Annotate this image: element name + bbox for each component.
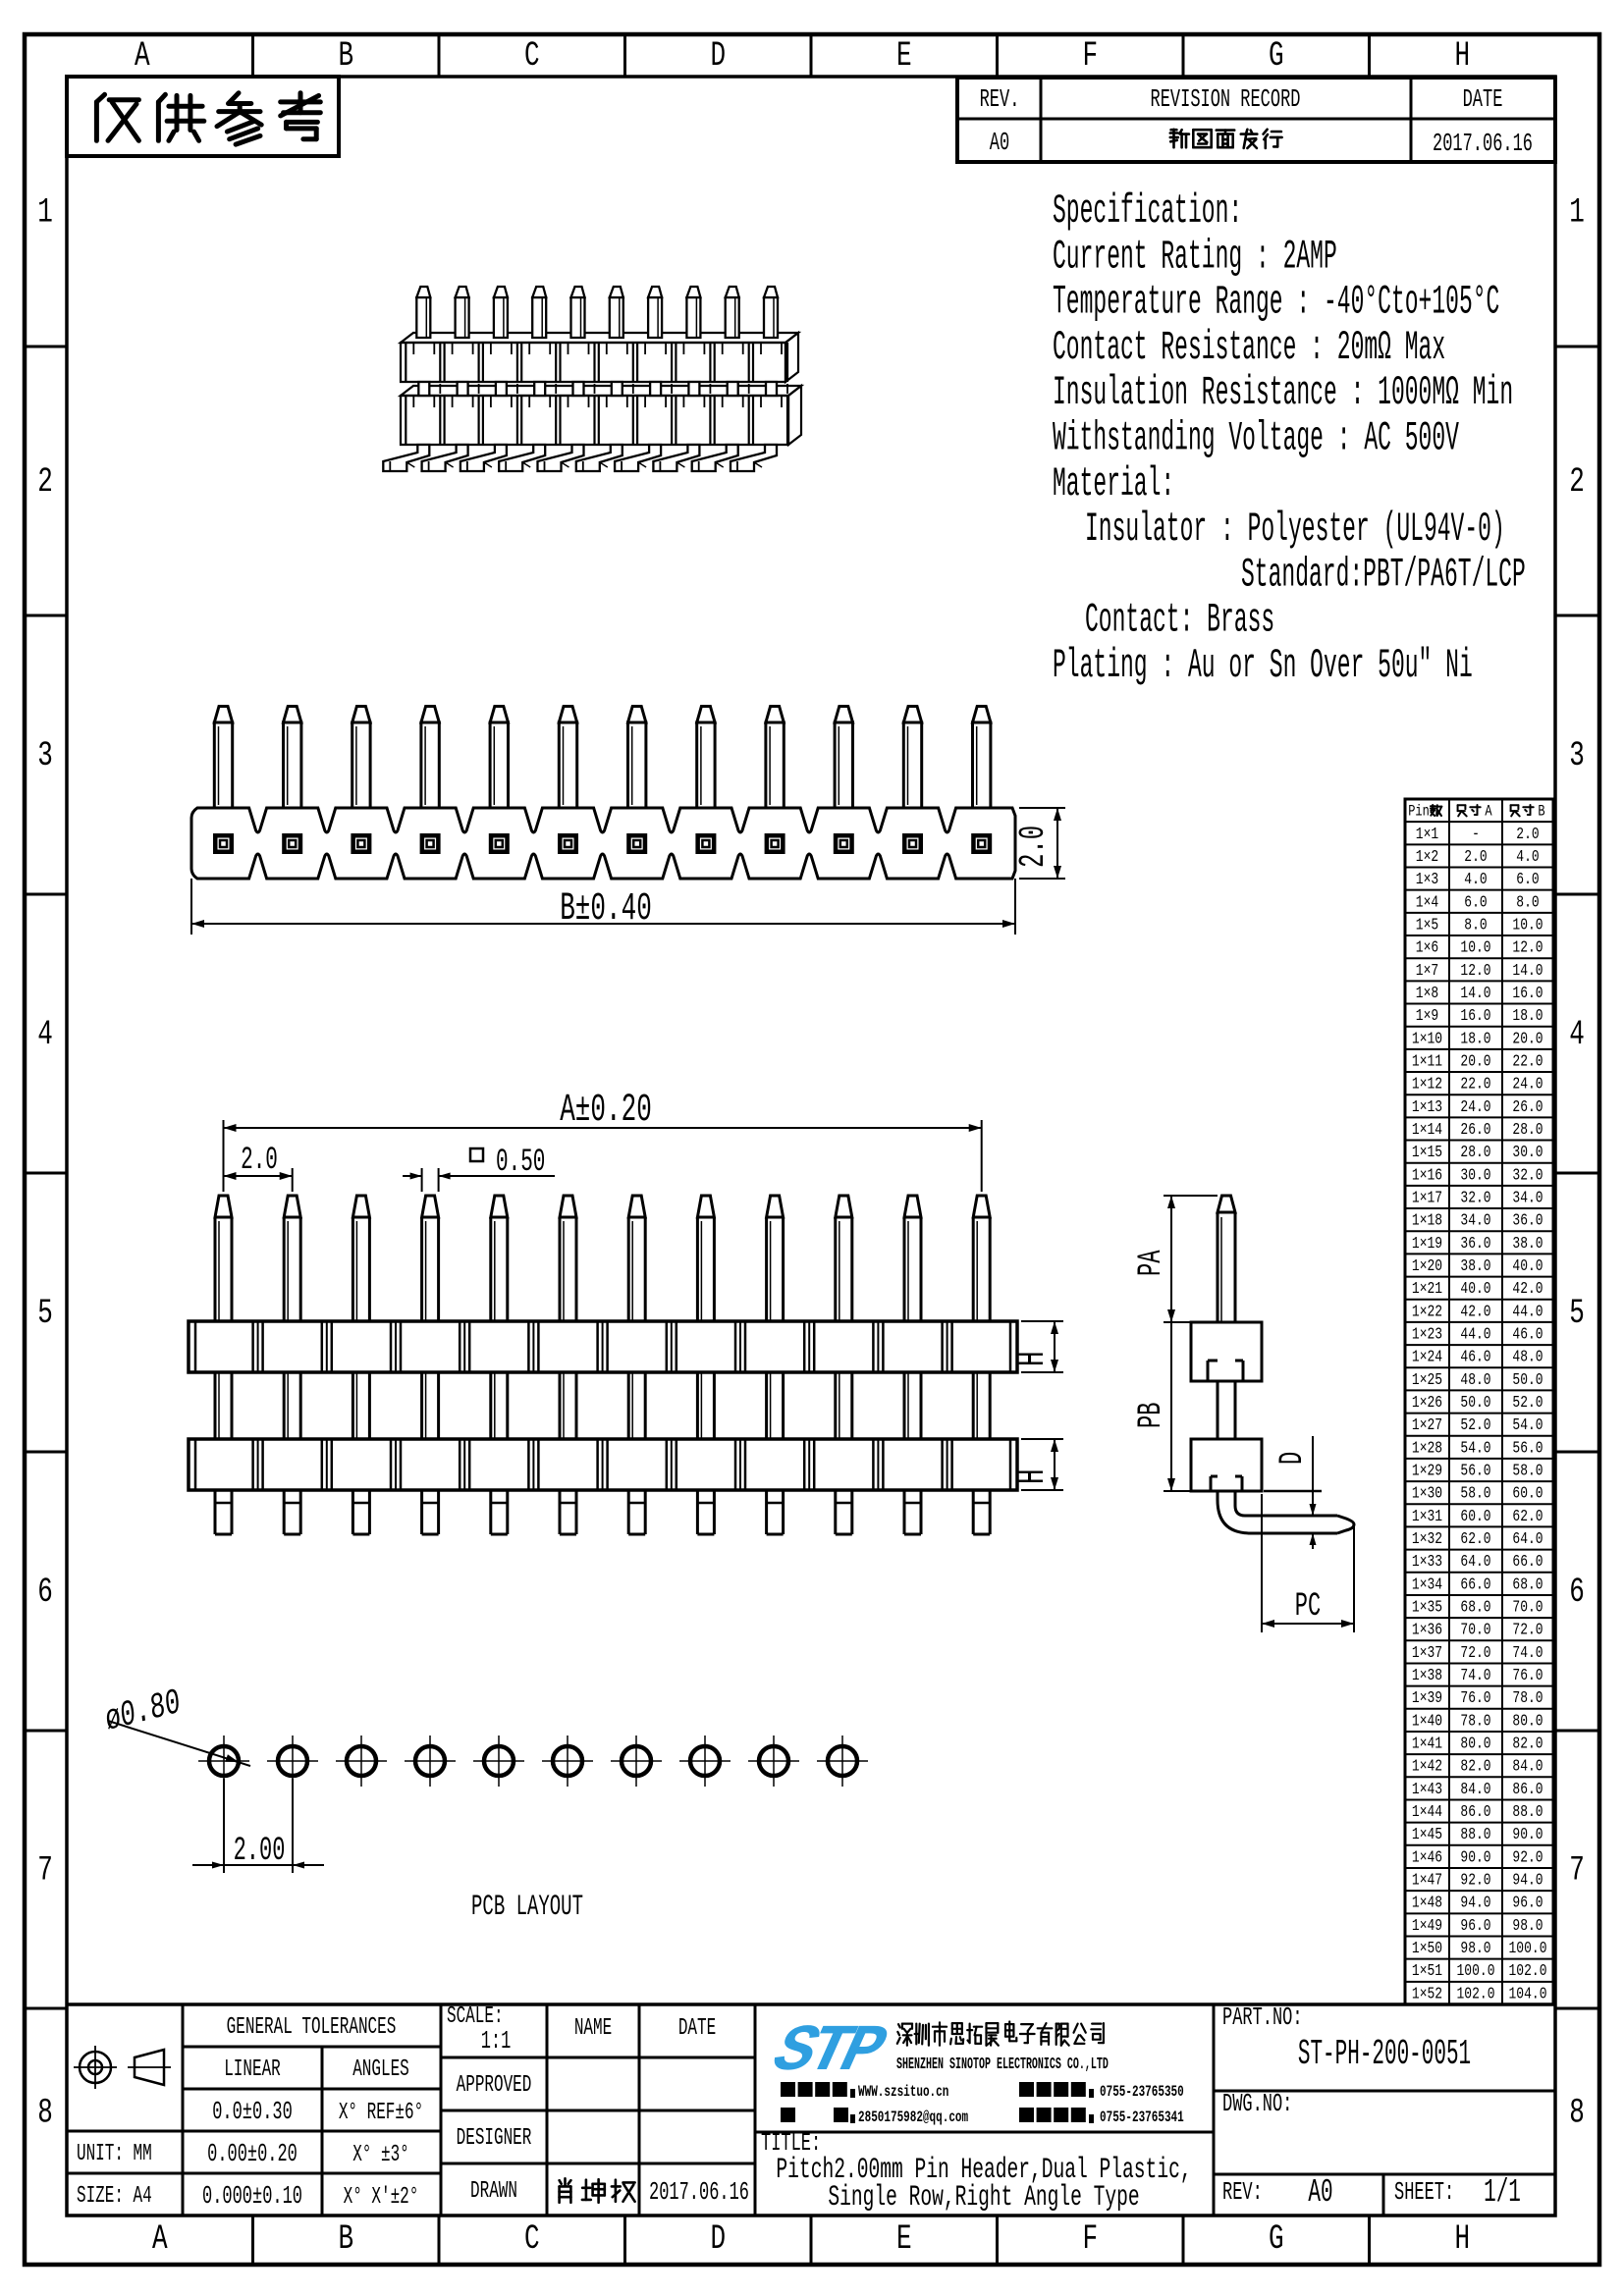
svg-text:1×48: 1×48: [1412, 1893, 1442, 1912]
svg-text:1×10: 1×10: [1412, 1029, 1442, 1048]
svg-text:40.0: 40.0: [1460, 1279, 1490, 1299]
svg-text:-: -: [1472, 824, 1480, 843]
svg-text:1×3: 1×3: [1416, 870, 1438, 889]
svg-text:42.0: 42.0: [1512, 1279, 1543, 1299]
svg-text:42.0: 42.0: [1460, 1302, 1490, 1321]
svg-text:1×13: 1×13: [1412, 1096, 1442, 1116]
svg-text:A: A: [152, 2220, 168, 2260]
svg-text:102.0: 102.0: [1509, 1961, 1547, 1981]
svg-text:4: 4: [37, 1016, 53, 1055]
svg-text:PC: PC: [1295, 1586, 1321, 1625]
svg-text:30.0: 30.0: [1512, 1143, 1543, 1162]
svg-text:82.0: 82.0: [1512, 1734, 1543, 1753]
svg-text:6: 6: [1569, 1574, 1585, 1613]
svg-text:80.0: 80.0: [1512, 1711, 1543, 1731]
svg-text:1×17: 1×17: [1412, 1188, 1442, 1207]
svg-text:1×28: 1×28: [1412, 1438, 1442, 1458]
svg-text:1×23: 1×23: [1412, 1324, 1442, 1344]
svg-text:32.0: 32.0: [1512, 1165, 1543, 1185]
svg-text:PA: PA: [1131, 1250, 1169, 1276]
svg-text:Contact: Brass: Contact: Brass: [1085, 598, 1274, 644]
svg-text:1×27: 1×27: [1412, 1415, 1442, 1435]
svg-text:48.0: 48.0: [1512, 1347, 1543, 1366]
svg-text:46.0: 46.0: [1512, 1324, 1543, 1344]
svg-text:7: 7: [37, 1851, 53, 1891]
svg-text:1×36: 1×36: [1412, 1620, 1442, 1639]
svg-text:86.0: 86.0: [1460, 1801, 1490, 1821]
svg-text:PB: PB: [1131, 1403, 1169, 1428]
svg-text:F: F: [1082, 2220, 1098, 2260]
svg-text:SHENZHEN SINOTOP ELECTRONICS C: SHENZHEN SINOTOP ELECTRONICS CO.,LTD: [896, 2056, 1109, 2075]
svg-text:Plating : Au or Sn Over 50u" N: Plating : Au or Sn Over 50u" Ni: [1053, 643, 1473, 689]
svg-text:2850175982@qq.com: 2850175982@qq.com: [858, 2109, 968, 2126]
svg-text:1×5: 1×5: [1416, 915, 1438, 934]
svg-text:1×29: 1×29: [1412, 1461, 1442, 1480]
svg-text:0755-23765341: 0755-23765341: [1100, 2109, 1184, 2126]
svg-text:12.0: 12.0: [1512, 937, 1543, 957]
svg-text:1×31: 1×31: [1412, 1506, 1442, 1525]
svg-text:A: A: [1485, 803, 1492, 821]
svg-text:2.0: 2.0: [1015, 826, 1055, 868]
svg-text:DRAWN: DRAWN: [470, 2178, 517, 2205]
svg-text:1×2: 1×2: [1416, 846, 1438, 866]
svg-text:1×47: 1×47: [1412, 1870, 1442, 1890]
svg-text:REVISION RECORD: REVISION RECORD: [1151, 85, 1301, 115]
svg-text:1:1: 1:1: [481, 2027, 512, 2056]
svg-text:1×12: 1×12: [1412, 1074, 1442, 1094]
svg-text:100.0: 100.0: [1457, 1961, 1495, 1981]
svg-text:98.0: 98.0: [1512, 1915, 1543, 1935]
svg-text:LINEAR: LINEAR: [224, 2056, 281, 2083]
svg-text:10.0: 10.0: [1512, 915, 1543, 934]
svg-text:54.0: 54.0: [1460, 1438, 1490, 1458]
svg-text:1×22: 1×22: [1412, 1302, 1442, 1321]
svg-text:50.0: 50.0: [1512, 1369, 1543, 1389]
svg-text:F: F: [1082, 37, 1098, 77]
svg-text:Contact Resistance : 20mΩ Max: Contact Resistance : 20mΩ Max: [1053, 325, 1445, 371]
svg-text:8: 8: [1569, 2094, 1585, 2133]
svg-text:94.0: 94.0: [1460, 1893, 1490, 1912]
svg-text:1×26: 1×26: [1412, 1392, 1442, 1412]
svg-text:104.0: 104.0: [1509, 1984, 1547, 2003]
svg-text:1×51: 1×51: [1412, 1961, 1442, 1981]
svg-text:UNIT: MM: UNIT: MM: [77, 2141, 152, 2167]
svg-text:1×18: 1×18: [1412, 1210, 1442, 1230]
svg-text:1×7: 1×7: [1416, 960, 1438, 980]
svg-text:REV.: REV.: [980, 85, 1020, 115]
svg-text:68.0: 68.0: [1512, 1575, 1543, 1594]
svg-text:16.0: 16.0: [1460, 1006, 1490, 1026]
svg-text:1×30: 1×30: [1412, 1483, 1442, 1503]
svg-text:APPROVED: APPROVED: [457, 2072, 532, 2099]
svg-text:7: 7: [1569, 1851, 1585, 1891]
svg-text:X° X'±2°: X° X'±2°: [344, 2184, 419, 2211]
svg-text:60.0: 60.0: [1512, 1483, 1543, 1503]
svg-text:WWW.szsituo.cn: WWW.szsituo.cn: [858, 2084, 948, 2101]
svg-text:1×49: 1×49: [1412, 1915, 1442, 1935]
svg-text:1: 1: [37, 193, 53, 233]
svg-text:90.0: 90.0: [1460, 1847, 1490, 1867]
svg-text:24.0: 24.0: [1512, 1074, 1543, 1094]
svg-text:20.0: 20.0: [1512, 1029, 1543, 1048]
svg-text:2: 2: [37, 463, 53, 503]
svg-text:62.0: 62.0: [1460, 1528, 1490, 1548]
svg-text:B±0.40: B±0.40: [560, 887, 652, 932]
svg-text:1×38: 1×38: [1412, 1665, 1442, 1684]
svg-text:36.0: 36.0: [1512, 1210, 1543, 1230]
svg-text:10.0: 10.0: [1460, 937, 1490, 957]
svg-text:1×20: 1×20: [1412, 1255, 1442, 1275]
svg-text:52.0: 52.0: [1512, 1392, 1543, 1412]
svg-text:ST-PH-200-0051: ST-PH-200-0051: [1298, 2035, 1471, 2074]
svg-text:100.0: 100.0: [1509, 1939, 1547, 1958]
svg-text:18.0: 18.0: [1512, 1006, 1543, 1026]
svg-text:1×44: 1×44: [1412, 1801, 1442, 1821]
svg-text:B: B: [338, 2220, 353, 2260]
svg-text:28.0: 28.0: [1512, 1119, 1543, 1139]
svg-text:1×4: 1×4: [1416, 892, 1438, 912]
svg-text:E: E: [896, 2220, 912, 2260]
svg-text:8: 8: [37, 2094, 53, 2133]
svg-text:88.0: 88.0: [1460, 1825, 1490, 1844]
svg-text:1×25: 1×25: [1412, 1369, 1442, 1389]
svg-text:56.0: 56.0: [1460, 1461, 1490, 1480]
svg-text:1×33: 1×33: [1412, 1552, 1442, 1572]
svg-text:Pin: Pin: [1408, 803, 1430, 821]
svg-text:1×42: 1×42: [1412, 1756, 1442, 1776]
svg-text:Insulation Resistance : 1000MΩ: Insulation Resistance : 1000MΩ Min: [1053, 371, 1513, 417]
svg-text:2017.06.16: 2017.06.16: [1433, 130, 1533, 159]
svg-text:1×21: 1×21: [1412, 1279, 1442, 1299]
svg-text:G: G: [1269, 37, 1284, 77]
svg-text:80.0: 80.0: [1460, 1734, 1490, 1753]
svg-text:1×39: 1×39: [1412, 1688, 1442, 1708]
svg-text:PCB LAYOUT: PCB LAYOUT: [471, 1891, 583, 1923]
svg-text:1×35: 1×35: [1412, 1597, 1442, 1617]
svg-text:98.0: 98.0: [1460, 1939, 1490, 1958]
svg-text:0.0±0.30: 0.0±0.30: [212, 2098, 293, 2126]
svg-text:X° ±3°: X° ±3°: [352, 2142, 409, 2168]
svg-text:28.0: 28.0: [1460, 1143, 1490, 1162]
svg-text:70.0: 70.0: [1512, 1597, 1543, 1617]
svg-text:76.0: 76.0: [1460, 1688, 1490, 1708]
svg-text:70.0: 70.0: [1460, 1620, 1490, 1639]
svg-text:96.0: 96.0: [1460, 1915, 1490, 1935]
svg-text:16.0: 16.0: [1512, 983, 1543, 1002]
svg-text:Standard:PBT/PA6T/LCP: Standard:PBT/PA6T/LCP: [1241, 553, 1526, 599]
svg-text:64.0: 64.0: [1460, 1552, 1490, 1572]
svg-text:DATE: DATE: [678, 2015, 716, 2042]
svg-text:SHEET:: SHEET:: [1394, 2178, 1454, 2207]
svg-text:REV:: REV:: [1222, 2178, 1263, 2207]
svg-text:DATE: DATE: [1463, 85, 1503, 115]
svg-text:84.0: 84.0: [1512, 1756, 1543, 1776]
svg-text:2: 2: [1569, 463, 1585, 503]
svg-text:0.50: 0.50: [496, 1145, 545, 1181]
svg-text:2.00: 2.00: [234, 1831, 286, 1869]
svg-text:Withstanding Voltage : AC 500V: Withstanding Voltage : AC 500V: [1053, 416, 1459, 462]
svg-text:G: G: [1269, 2220, 1284, 2260]
svg-text:A0: A0: [990, 129, 1009, 158]
svg-text:H: H: [1454, 2220, 1470, 2260]
svg-text:Temperature Range : -40°Cto+10: Temperature Range : -40°Cto+105°C: [1053, 280, 1499, 326]
svg-text:26.0: 26.0: [1512, 1096, 1543, 1116]
svg-text:H: H: [1454, 37, 1470, 77]
svg-text:4.0: 4.0: [1516, 846, 1539, 866]
svg-text:36.0: 36.0: [1460, 1233, 1490, 1253]
svg-text:78.0: 78.0: [1512, 1688, 1543, 1708]
svg-text:1×8: 1×8: [1416, 983, 1438, 1002]
svg-text:52.0: 52.0: [1460, 1415, 1490, 1435]
svg-text:54.0: 54.0: [1512, 1415, 1543, 1435]
svg-text:Current Rating : 2AMP: Current Rating : 2AMP: [1053, 235, 1337, 281]
svg-text:1×52: 1×52: [1412, 1984, 1442, 2003]
svg-text:74.0: 74.0: [1460, 1665, 1490, 1684]
svg-text:22.0: 22.0: [1512, 1051, 1543, 1071]
svg-text:34.0: 34.0: [1460, 1210, 1490, 1230]
svg-text:C: C: [524, 2220, 540, 2260]
svg-text:4: 4: [1569, 1016, 1585, 1055]
svg-text:34.0: 34.0: [1512, 1188, 1543, 1207]
svg-text:8.0: 8.0: [1464, 915, 1487, 934]
svg-text:26.0: 26.0: [1460, 1119, 1490, 1139]
svg-text:1×40: 1×40: [1412, 1711, 1442, 1731]
svg-text:2017.06.16: 2017.06.16: [649, 2178, 749, 2207]
svg-text:2.0: 2.0: [1464, 846, 1487, 866]
svg-text:38.0: 38.0: [1460, 1255, 1490, 1275]
svg-text:D: D: [710, 2220, 726, 2260]
svg-text:18.0: 18.0: [1460, 1029, 1490, 1048]
svg-text:X° REF±6°: X° REF±6°: [339, 2100, 423, 2126]
svg-text:DESIGNER: DESIGNER: [457, 2125, 532, 2152]
svg-text:5: 5: [1569, 1295, 1585, 1334]
svg-text:76.0: 76.0: [1512, 1665, 1543, 1684]
svg-text:92.0: 92.0: [1460, 1870, 1490, 1890]
svg-text:Insulator : Polyester (UL94V-0: Insulator : Polyester (UL94V-0): [1085, 507, 1505, 554]
svg-text:14.0: 14.0: [1460, 983, 1490, 1002]
svg-text:3: 3: [1569, 737, 1585, 776]
svg-text:1×24: 1×24: [1412, 1347, 1442, 1366]
svg-text:1×46: 1×46: [1412, 1847, 1442, 1867]
svg-text:90.0: 90.0: [1512, 1825, 1543, 1844]
svg-text:1×11: 1×11: [1412, 1051, 1442, 1071]
svg-text:Specification:: Specification:: [1053, 188, 1242, 235]
svg-text:44.0: 44.0: [1512, 1302, 1543, 1321]
svg-text:A0: A0: [1308, 2175, 1332, 2212]
svg-text:1×43: 1×43: [1412, 1779, 1442, 1798]
svg-text:12.0: 12.0: [1460, 960, 1490, 980]
svg-text:66.0: 66.0: [1460, 1575, 1490, 1594]
svg-text:1×34: 1×34: [1412, 1575, 1442, 1594]
svg-text:1×50: 1×50: [1412, 1939, 1442, 1958]
svg-text:DWG.NO:: DWG.NO:: [1222, 2090, 1292, 2118]
svg-text:82.0: 82.0: [1460, 1756, 1490, 1776]
svg-text:66.0: 66.0: [1512, 1552, 1543, 1572]
svg-text:ANGLES: ANGLES: [352, 2056, 409, 2083]
svg-text:46.0: 46.0: [1460, 1347, 1490, 1366]
svg-text:1×15: 1×15: [1412, 1143, 1442, 1162]
svg-text:68.0: 68.0: [1460, 1597, 1490, 1617]
svg-text:1: 1: [1569, 193, 1585, 233]
svg-text:56.0: 56.0: [1512, 1438, 1543, 1458]
svg-text:1×14: 1×14: [1412, 1119, 1442, 1139]
svg-text:40.0: 40.0: [1512, 1255, 1543, 1275]
svg-text:58.0: 58.0: [1512, 1461, 1543, 1480]
svg-text:1×37: 1×37: [1412, 1642, 1442, 1662]
svg-text:PART.NO:: PART.NO:: [1222, 2003, 1303, 2032]
svg-text:0.00±0.20: 0.00±0.20: [207, 2140, 298, 2168]
svg-text:D: D: [1272, 1452, 1311, 1465]
svg-text:72.0: 72.0: [1512, 1620, 1543, 1639]
svg-text:74.0: 74.0: [1512, 1642, 1543, 1662]
svg-text:86.0: 86.0: [1512, 1779, 1543, 1798]
svg-text:Material:: Material:: [1053, 461, 1174, 507]
svg-text:1/1: 1/1: [1484, 2175, 1521, 2212]
svg-text:62.0: 62.0: [1512, 1506, 1543, 1525]
svg-text:14.0: 14.0: [1512, 960, 1543, 980]
svg-text:0.000±0.10: 0.000±0.10: [202, 2182, 302, 2211]
svg-text:1×6: 1×6: [1416, 937, 1438, 957]
svg-text:6.0: 6.0: [1516, 870, 1539, 889]
svg-text:GENERAL TOLERANCES: GENERAL TOLERANCES: [227, 2014, 397, 2041]
svg-text:3: 3: [37, 737, 53, 776]
svg-text:1×9: 1×9: [1416, 1006, 1438, 1026]
svg-text:92.0: 92.0: [1512, 1847, 1543, 1867]
svg-text:D: D: [710, 37, 726, 77]
svg-text:48.0: 48.0: [1460, 1369, 1490, 1389]
svg-text:96.0: 96.0: [1512, 1893, 1543, 1912]
svg-text:1×41: 1×41: [1412, 1734, 1442, 1753]
svg-text:24.0: 24.0: [1460, 1096, 1490, 1116]
svg-text:58.0: 58.0: [1460, 1483, 1490, 1503]
svg-text:20.0: 20.0: [1460, 1051, 1490, 1071]
svg-text:78.0: 78.0: [1460, 1711, 1490, 1731]
svg-text:Single Row,Right Angle Type: Single Row,Right Angle Type: [828, 2180, 1139, 2214]
svg-text:C: C: [524, 37, 540, 77]
svg-text:NAME: NAME: [574, 2015, 612, 2042]
svg-text:84.0: 84.0: [1460, 1779, 1490, 1798]
svg-text:50.0: 50.0: [1460, 1392, 1490, 1412]
svg-text:H: H: [1010, 1351, 1055, 1366]
svg-text:44.0: 44.0: [1460, 1324, 1490, 1344]
svg-text:30.0: 30.0: [1460, 1165, 1490, 1185]
svg-text:88.0: 88.0: [1512, 1801, 1543, 1821]
svg-text:H: H: [1010, 1468, 1055, 1484]
svg-text:60.0: 60.0: [1460, 1506, 1490, 1525]
svg-text:64.0: 64.0: [1512, 1528, 1543, 1548]
svg-text:32.0: 32.0: [1460, 1188, 1490, 1207]
svg-text:2.0: 2.0: [241, 1143, 278, 1179]
svg-text:1×32: 1×32: [1412, 1528, 1442, 1548]
svg-text:6.0: 6.0: [1464, 892, 1487, 912]
svg-text:6: 6: [37, 1574, 53, 1613]
svg-text:94.0: 94.0: [1512, 1870, 1543, 1890]
svg-text:22.0: 22.0: [1460, 1074, 1490, 1094]
svg-text:A: A: [135, 37, 150, 77]
svg-text:5: 5: [37, 1295, 53, 1334]
svg-text:B: B: [1538, 803, 1544, 821]
svg-text:72.0: 72.0: [1460, 1642, 1490, 1662]
svg-text:1×1: 1×1: [1416, 824, 1438, 843]
svg-text:1×45: 1×45: [1412, 1825, 1442, 1844]
svg-text:4.0: 4.0: [1464, 870, 1487, 889]
svg-text:SIZE: A4: SIZE: A4: [77, 2183, 152, 2210]
svg-text:2.0: 2.0: [1516, 824, 1539, 843]
svg-text:1×16: 1×16: [1412, 1165, 1442, 1185]
svg-text:0755-23765350: 0755-23765350: [1100, 2084, 1184, 2101]
svg-text:102.0: 102.0: [1457, 1984, 1495, 2003]
svg-text:A±0.20: A±0.20: [560, 1089, 652, 1133]
svg-text:B: B: [338, 37, 353, 77]
svg-text:1×19: 1×19: [1412, 1233, 1442, 1253]
svg-text:E: E: [896, 37, 912, 77]
svg-text:8.0: 8.0: [1516, 892, 1539, 912]
svg-text:38.0: 38.0: [1512, 1233, 1543, 1253]
